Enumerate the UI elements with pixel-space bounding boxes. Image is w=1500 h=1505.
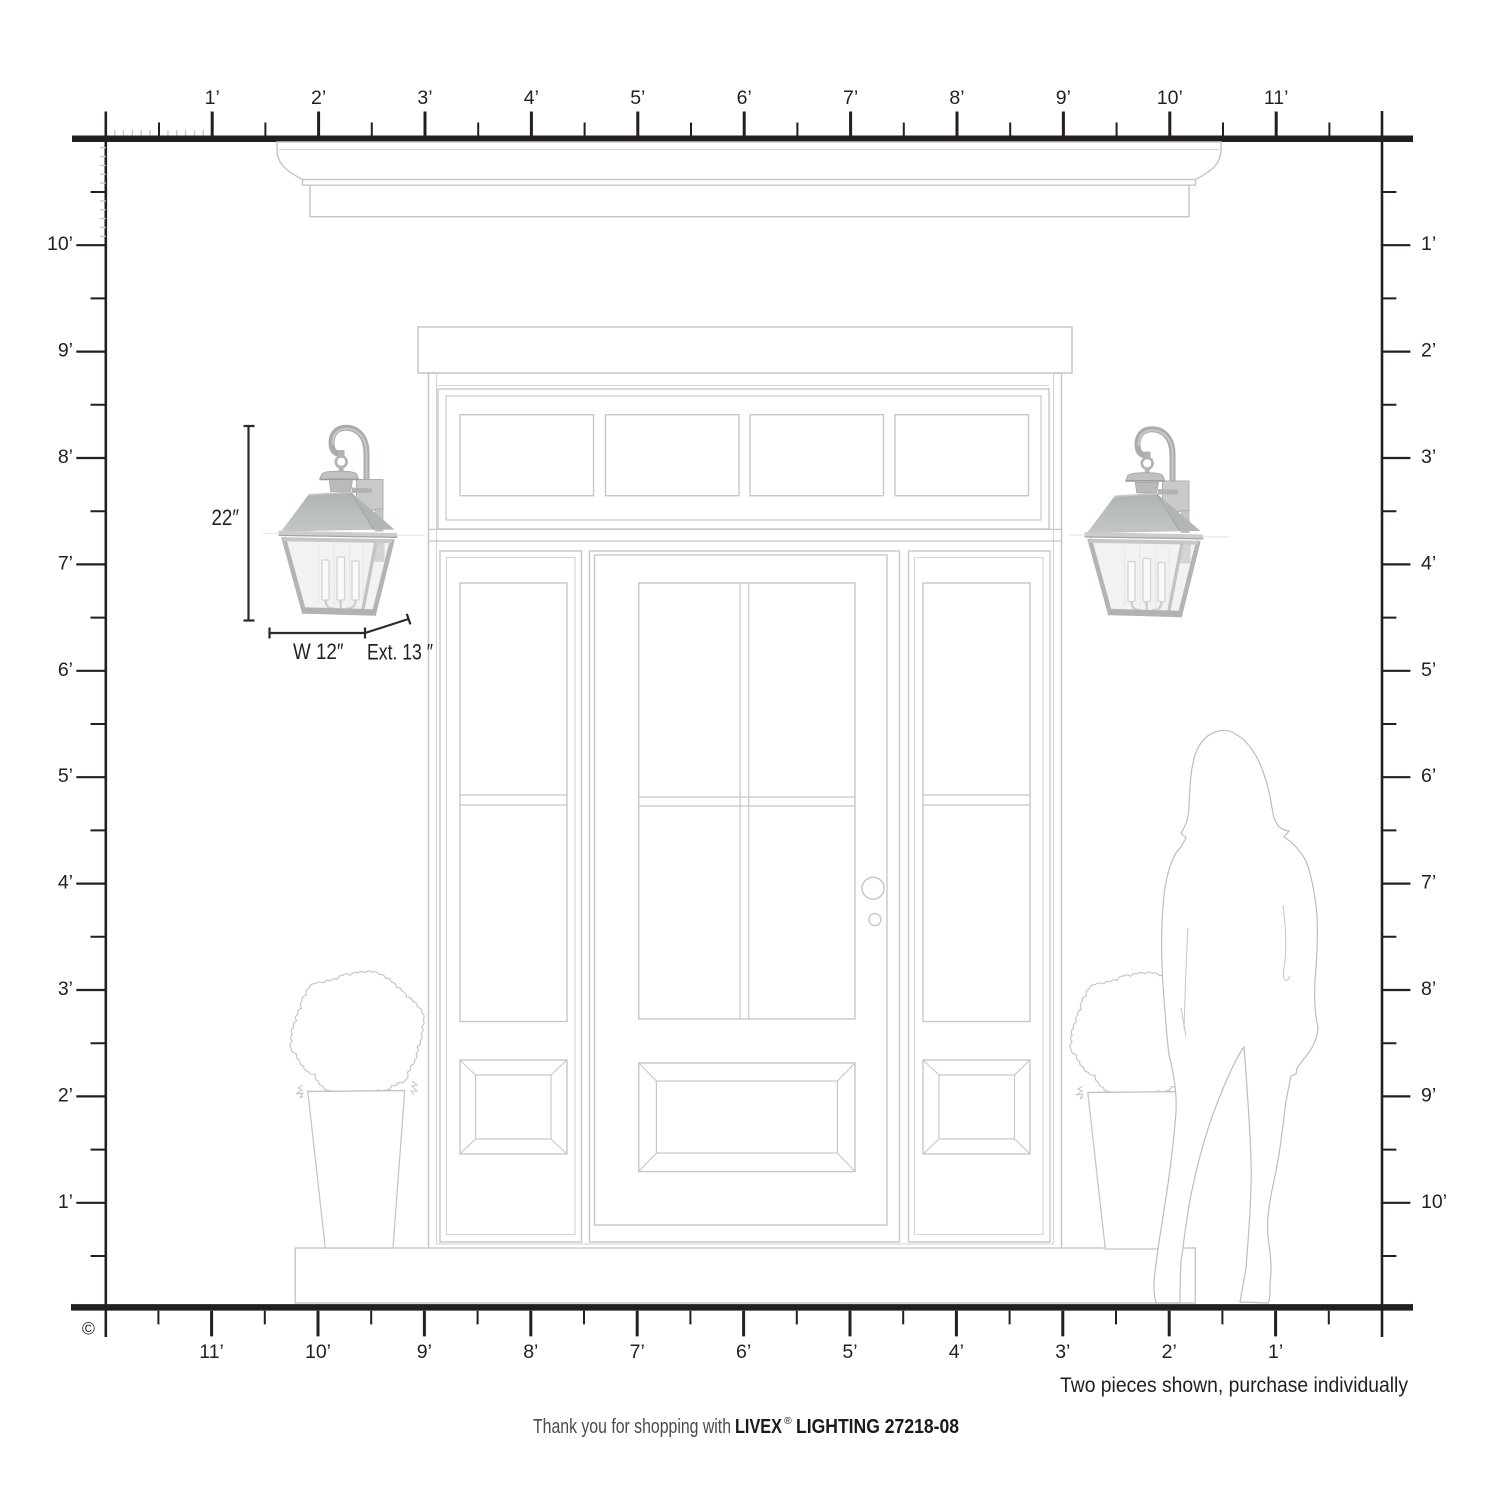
svg-text:3’: 3’ <box>1421 446 1436 468</box>
svg-text:Thank you for shopping with: Thank you for shopping with <box>533 1416 731 1438</box>
svg-text:10’: 10’ <box>47 233 73 255</box>
svg-text:1’: 1’ <box>58 1191 73 1213</box>
svg-text:5’: 5’ <box>1421 659 1436 681</box>
svg-text:8’: 8’ <box>58 446 73 468</box>
svg-text:5’: 5’ <box>842 1341 857 1363</box>
svg-text:5’: 5’ <box>630 87 645 109</box>
svg-text:10’: 10’ <box>1157 87 1183 109</box>
svg-text:4’: 4’ <box>58 872 73 894</box>
svg-text:Ext. 13 ″: Ext. 13 ″ <box>367 640 433 665</box>
svg-text:Two pieces shown, purchase ind: Two pieces shown, purchase individually <box>1060 1374 1408 1397</box>
svg-text:7’: 7’ <box>1421 872 1436 894</box>
svg-text:6’: 6’ <box>736 1341 751 1363</box>
svg-text:1’: 1’ <box>1268 1341 1283 1363</box>
svg-text:7’: 7’ <box>58 552 73 574</box>
svg-text:9’: 9’ <box>58 340 73 362</box>
svg-text:10’: 10’ <box>1421 1191 1447 1213</box>
svg-text:8’: 8’ <box>523 1341 538 1363</box>
svg-text:3’: 3’ <box>1055 1341 1070 1363</box>
svg-text:LIGHTING 27218-08: LIGHTING 27218-08 <box>796 1416 959 1438</box>
svg-text:9’: 9’ <box>1056 87 1071 109</box>
svg-text:6’: 6’ <box>1421 765 1436 787</box>
svg-text:7’: 7’ <box>630 1341 645 1363</box>
svg-text:3’: 3’ <box>417 87 432 109</box>
svg-text:4’: 4’ <box>524 87 539 109</box>
svg-text:3’: 3’ <box>58 978 73 1000</box>
svg-text:10’: 10’ <box>305 1341 331 1363</box>
svg-text:1’: 1’ <box>205 87 220 109</box>
svg-text:6’: 6’ <box>58 659 73 681</box>
svg-text:9’: 9’ <box>417 1341 432 1363</box>
svg-text:4’: 4’ <box>949 1341 964 1363</box>
svg-text:W 12″: W 12″ <box>293 639 344 664</box>
svg-text:2’: 2’ <box>311 87 326 109</box>
svg-text:22″: 22″ <box>212 505 240 530</box>
svg-text:®: ® <box>784 1415 792 1427</box>
svg-text:8’: 8’ <box>949 87 964 109</box>
svg-text:11’: 11’ <box>199 1341 224 1363</box>
svg-text:7’: 7’ <box>843 87 858 109</box>
svg-text:6’: 6’ <box>737 87 752 109</box>
svg-text:9’: 9’ <box>1421 1084 1436 1106</box>
svg-text:2’: 2’ <box>58 1084 73 1106</box>
svg-text:2’: 2’ <box>1421 340 1436 362</box>
svg-text:4’: 4’ <box>1421 552 1436 574</box>
svg-text:11’: 11’ <box>1264 87 1289 109</box>
svg-text:2’: 2’ <box>1162 1341 1177 1363</box>
svg-text:©: © <box>82 1319 95 1339</box>
svg-text:8’: 8’ <box>1421 978 1436 1000</box>
svg-text:LIVEX: LIVEX <box>735 1416 783 1438</box>
svg-text:1’: 1’ <box>1421 233 1436 255</box>
svg-text:5’: 5’ <box>58 765 73 787</box>
